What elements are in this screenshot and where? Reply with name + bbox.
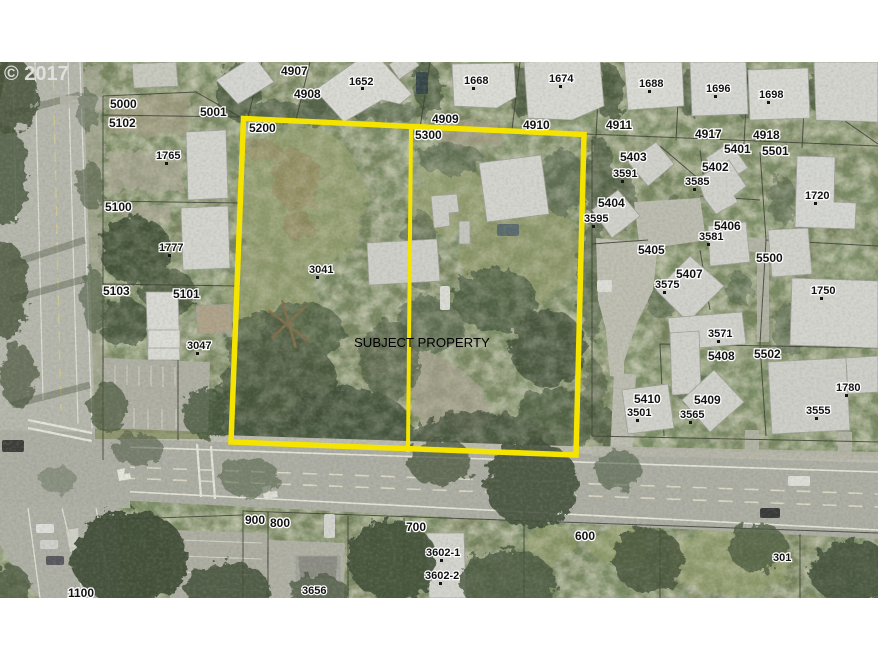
- svg-text:5000: 5000: [110, 97, 137, 111]
- svg-text:5502: 5502: [754, 347, 781, 361]
- svg-text:4918: 4918: [753, 128, 780, 142]
- svg-text:3501: 3501: [627, 407, 651, 419]
- svg-text:3047: 3047: [187, 340, 211, 352]
- svg-text:5401: 5401: [724, 142, 751, 156]
- svg-text:3571: 3571: [708, 328, 732, 340]
- svg-text:5001: 5001: [200, 105, 227, 119]
- svg-text:800: 800: [270, 516, 290, 530]
- svg-text:3602-1: 3602-1: [426, 547, 460, 559]
- svg-text:1698: 1698: [759, 89, 783, 101]
- svg-text:3591: 3591: [613, 168, 637, 180]
- svg-text:4909: 4909: [432, 112, 459, 126]
- svg-text:5405: 5405: [638, 243, 665, 257]
- svg-text:SUBJECT PROPERTY: SUBJECT PROPERTY: [354, 335, 490, 350]
- svg-text:3602-2: 3602-2: [425, 570, 459, 582]
- svg-text:3575: 3575: [655, 279, 679, 291]
- svg-text:5402: 5402: [702, 160, 729, 174]
- svg-text:4908: 4908: [294, 87, 321, 101]
- svg-text:5500: 5500: [756, 251, 783, 265]
- svg-text:5101: 5101: [173, 287, 200, 301]
- svg-text:5100: 5100: [105, 200, 132, 214]
- svg-text:5404: 5404: [598, 196, 625, 210]
- svg-text:© 2017: © 2017: [4, 63, 69, 85]
- svg-text:600: 600: [575, 529, 595, 543]
- svg-text:5501: 5501: [762, 144, 789, 158]
- svg-text:4907: 4907: [281, 64, 308, 78]
- svg-text:1100: 1100: [68, 586, 94, 600]
- svg-text:5409: 5409: [694, 393, 721, 407]
- svg-text:3595: 3595: [584, 213, 608, 225]
- svg-text:1674: 1674: [549, 73, 574, 85]
- svg-text:1668: 1668: [464, 75, 488, 87]
- svg-text:900: 900: [245, 513, 265, 527]
- svg-text:1696: 1696: [706, 83, 730, 95]
- svg-text:4911: 4911: [606, 118, 632, 132]
- svg-text:5403: 5403: [620, 150, 647, 164]
- svg-text:1765: 1765: [156, 150, 180, 162]
- svg-text:1688: 1688: [639, 78, 663, 90]
- svg-text:3565: 3565: [680, 409, 704, 421]
- svg-text:1652: 1652: [349, 76, 373, 88]
- svg-text:3555: 3555: [806, 405, 830, 417]
- svg-text:5200: 5200: [249, 121, 276, 135]
- svg-text:5410: 5410: [634, 392, 661, 406]
- svg-text:1777: 1777: [159, 242, 183, 254]
- svg-text:4910: 4910: [523, 118, 550, 132]
- svg-text:1750: 1750: [811, 285, 835, 297]
- svg-text:3041: 3041: [309, 264, 333, 276]
- svg-text:700: 700: [406, 520, 426, 534]
- svg-text:5407: 5407: [676, 267, 703, 281]
- svg-text:5103: 5103: [103, 284, 130, 298]
- svg-text:3656: 3656: [302, 585, 326, 597]
- svg-text:3581: 3581: [699, 231, 723, 243]
- svg-text:301: 301: [773, 552, 791, 564]
- svg-text:1780: 1780: [836, 382, 860, 394]
- svg-text:1720: 1720: [805, 190, 829, 202]
- svg-text:4917: 4917: [695, 127, 722, 141]
- svg-text:5408: 5408: [708, 349, 735, 363]
- svg-text:5102: 5102: [109, 116, 136, 130]
- svg-text:3585: 3585: [685, 176, 709, 188]
- svg-text:5300: 5300: [415, 128, 442, 142]
